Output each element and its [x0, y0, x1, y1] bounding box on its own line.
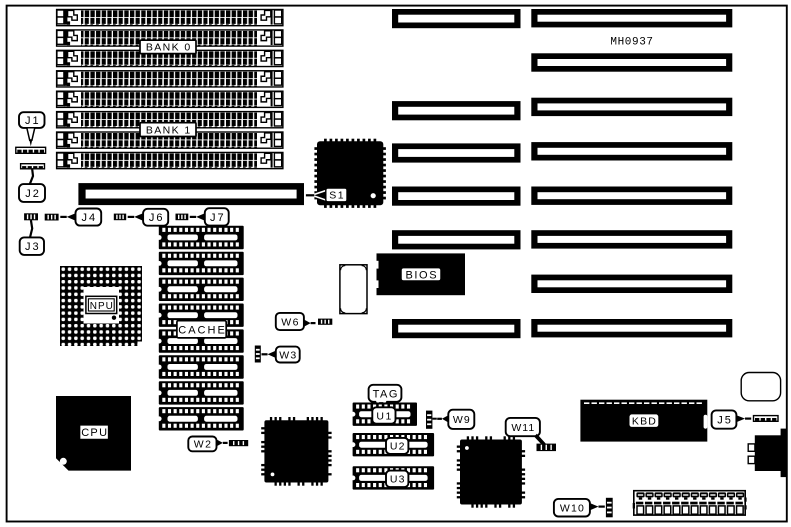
svg-text:TAG: TAG: [373, 388, 399, 400]
svg-text:J5: J5: [717, 415, 733, 427]
svg-text:S1: S1: [329, 190, 345, 202]
svg-text:U3: U3: [390, 474, 406, 486]
svg-text:U1: U1: [376, 410, 392, 422]
svg-text:J6: J6: [149, 212, 165, 224]
svg-text:KBD: KBD: [632, 415, 657, 427]
svg-text:MH0937: MH0937: [610, 37, 653, 49]
svg-text:W3: W3: [279, 349, 297, 361]
svg-text:CPU: CPU: [81, 427, 108, 439]
svg-text:J4: J4: [82, 212, 98, 224]
svg-text:W9: W9: [453, 414, 471, 426]
svg-text:BANK 1: BANK 1: [146, 124, 192, 136]
svg-text:W11: W11: [511, 422, 535, 434]
svg-text:J3: J3: [25, 241, 41, 253]
svg-text:NPU: NPU: [90, 301, 114, 312]
svg-text:J7: J7: [210, 212, 226, 224]
svg-text:U2: U2: [390, 441, 406, 453]
svg-text:J2: J2: [25, 188, 41, 200]
svg-text:BIOS: BIOS: [405, 269, 438, 281]
svg-text:J1: J1: [25, 115, 41, 127]
svg-text:W6: W6: [281, 316, 300, 328]
svg-text:W2: W2: [194, 439, 213, 451]
svg-text:CACHE: CACHE: [178, 324, 227, 336]
svg-text:BANK 0: BANK 0: [146, 42, 192, 54]
svg-text:W10: W10: [560, 502, 585, 514]
